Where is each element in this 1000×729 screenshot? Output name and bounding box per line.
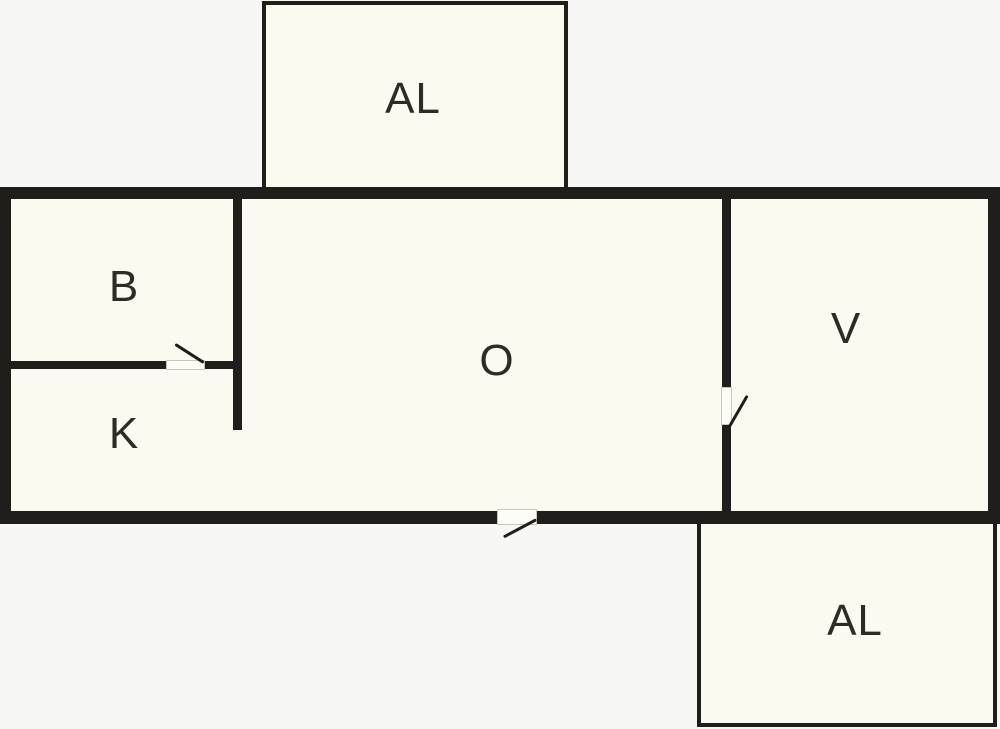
room-label-k: K xyxy=(109,412,139,456)
room-label-balcony-top: AL xyxy=(385,77,441,121)
room-label-v: V xyxy=(831,307,861,351)
room-label-b: B xyxy=(109,265,139,309)
wall-b-k-stub xyxy=(205,361,233,369)
room-label-balcony-bottom: AL xyxy=(827,599,883,643)
room-label-o: O xyxy=(479,339,514,383)
wall-b-o xyxy=(233,199,242,430)
wall-o-v-lower xyxy=(722,425,731,511)
wall-o-v-upper xyxy=(722,199,731,387)
floor-plan: AL B K O V AL xyxy=(0,0,1000,729)
wall-b-k xyxy=(11,361,166,369)
